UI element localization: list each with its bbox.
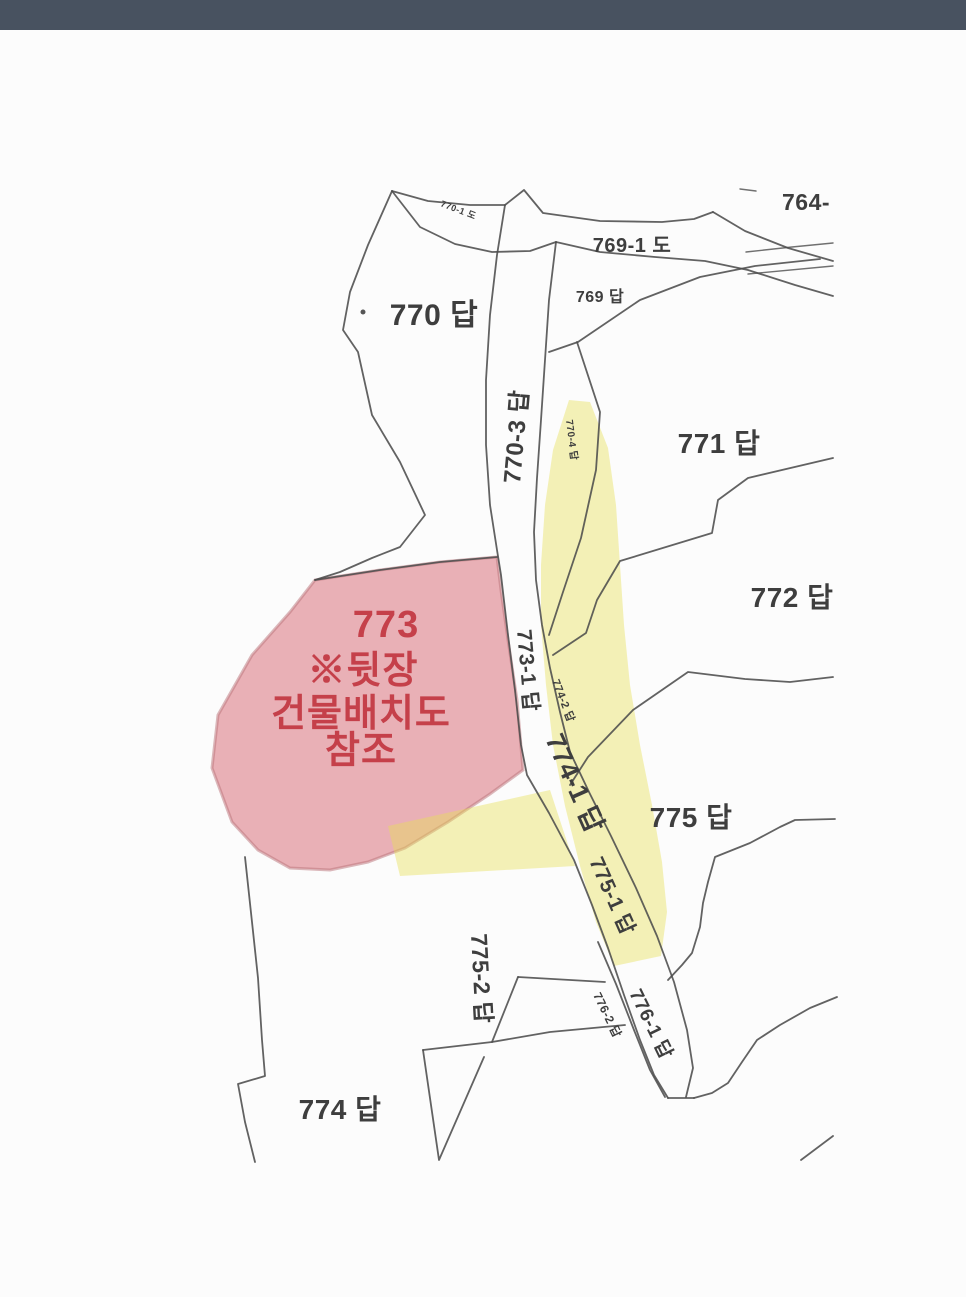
parcel-label-770: 770 답 [390,299,479,332]
parcel-label-771: 771 답 [678,428,761,459]
parcel-label-773-note-4: 참조 [325,730,397,772]
parcel-label-773-note-1: 773 [353,604,419,646]
screenshot-root: 764-769-1 도769 답770 답770-1 도770-3 답770-4… [0,0,966,1297]
parcel-label-773-note-2: ※뒷장 [308,650,419,692]
parcel-label-775: 775 답 [650,802,733,833]
parcel-label-764: 764- [782,189,830,215]
parcel-label-774: 774 답 [299,1094,382,1125]
parcel-label-769-1: 769-1 도 [593,235,672,257]
cadastral-map-canvas: 764-769-1 도769 답770 답770-1 도770-3 답770-4… [0,0,966,1297]
parcel-label-769: 769 답 [576,287,624,306]
map-dot [361,310,366,315]
parcel-label-773-note-3: 건물배치도 [271,693,451,735]
parcel-label-772: 772 답 [751,582,834,613]
parcel-label-775-2: 775-2 답 [466,933,497,1024]
top-bar [0,0,966,30]
